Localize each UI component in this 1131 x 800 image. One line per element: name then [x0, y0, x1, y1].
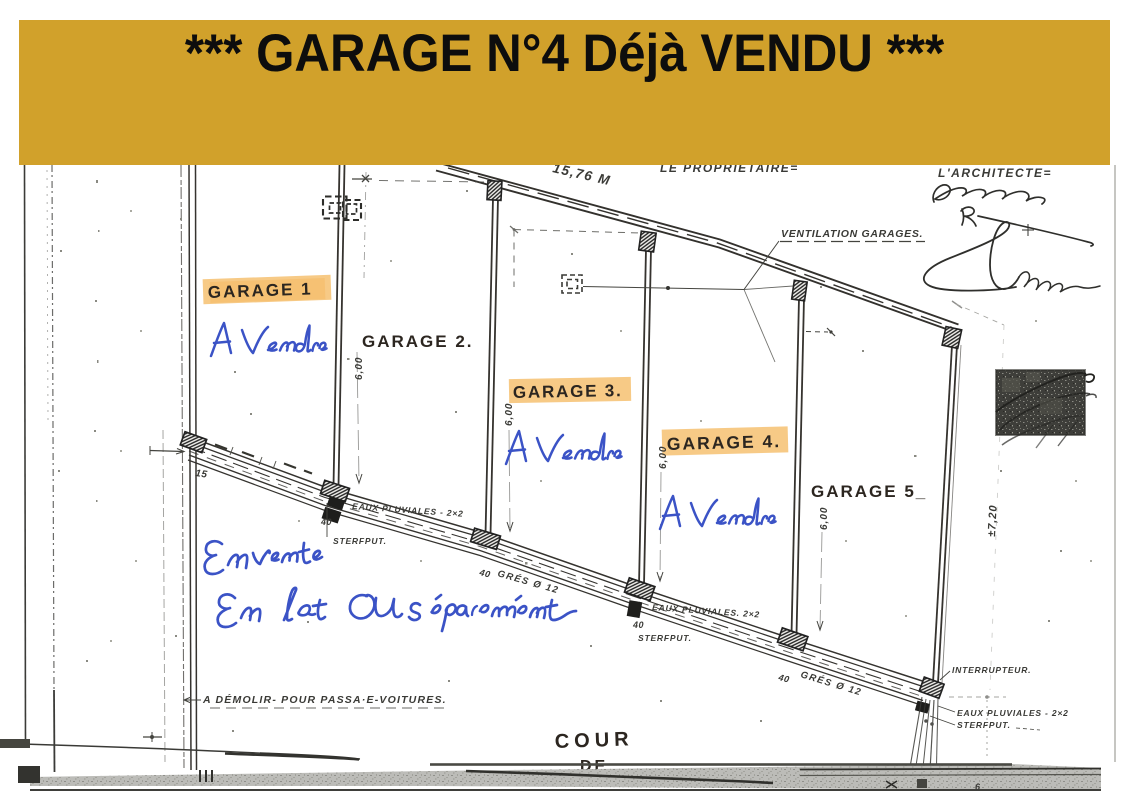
- svg-text:GARAGE 3.: GARAGE 3.: [513, 381, 623, 402]
- svg-text:6,00: 6,00: [354, 357, 365, 380]
- svg-text:6,00: 6,00: [504, 403, 515, 426]
- svg-text:STERFPUT.: STERFPUT.: [957, 720, 1011, 730]
- svg-text:40: 40: [777, 672, 791, 685]
- svg-text:6,00: 6,00: [819, 507, 830, 530]
- svg-text:STERFPUT.: STERFPUT.: [638, 633, 692, 643]
- svg-text:40: 40: [632, 620, 644, 630]
- svg-text:15: 15: [195, 468, 209, 481]
- svg-text:EAUX PLUVIALES - 2×2: EAUX PLUVIALES - 2×2: [957, 708, 1069, 718]
- svg-text:6,00: 6,00: [658, 446, 669, 469]
- svg-text:L'ARCHITECTE=: L'ARCHITECTE=: [938, 166, 1052, 180]
- svg-text:VENTILATION GARAGES.: VENTILATION GARAGES.: [781, 228, 923, 240]
- svg-text:COUR: COUR: [554, 728, 634, 753]
- svg-text:GARAGE 2.: GARAGE 2.: [362, 332, 474, 351]
- svg-text:40: 40: [320, 517, 332, 527]
- svg-text:GARAGE 4.: GARAGE 4.: [667, 431, 782, 454]
- svg-text:EAUX PLUVIALES. 2×2: EAUX PLUVIALES. 2×2: [652, 602, 760, 620]
- svg-text:40: 40: [478, 567, 492, 580]
- svg-text:GRÉS Ø 12: GRÉS Ø 12: [799, 669, 863, 698]
- svg-text:±7,20: ±7,20: [986, 504, 1000, 537]
- svg-text:STERFPUT.: STERFPUT.: [333, 536, 387, 546]
- svg-text:GARAGE 1: GARAGE 1: [207, 279, 312, 302]
- svg-text:A DÉMOLIR- POUR PASSA·E-VOITUR: A DÉMOLIR- POUR PASSA·E-VOITURES.: [202, 693, 447, 706]
- svg-text:INTERRUPTEUR.: INTERRUPTEUR.: [952, 665, 1031, 675]
- svg-text:GARAGE 5_: GARAGE 5_: [811, 482, 927, 501]
